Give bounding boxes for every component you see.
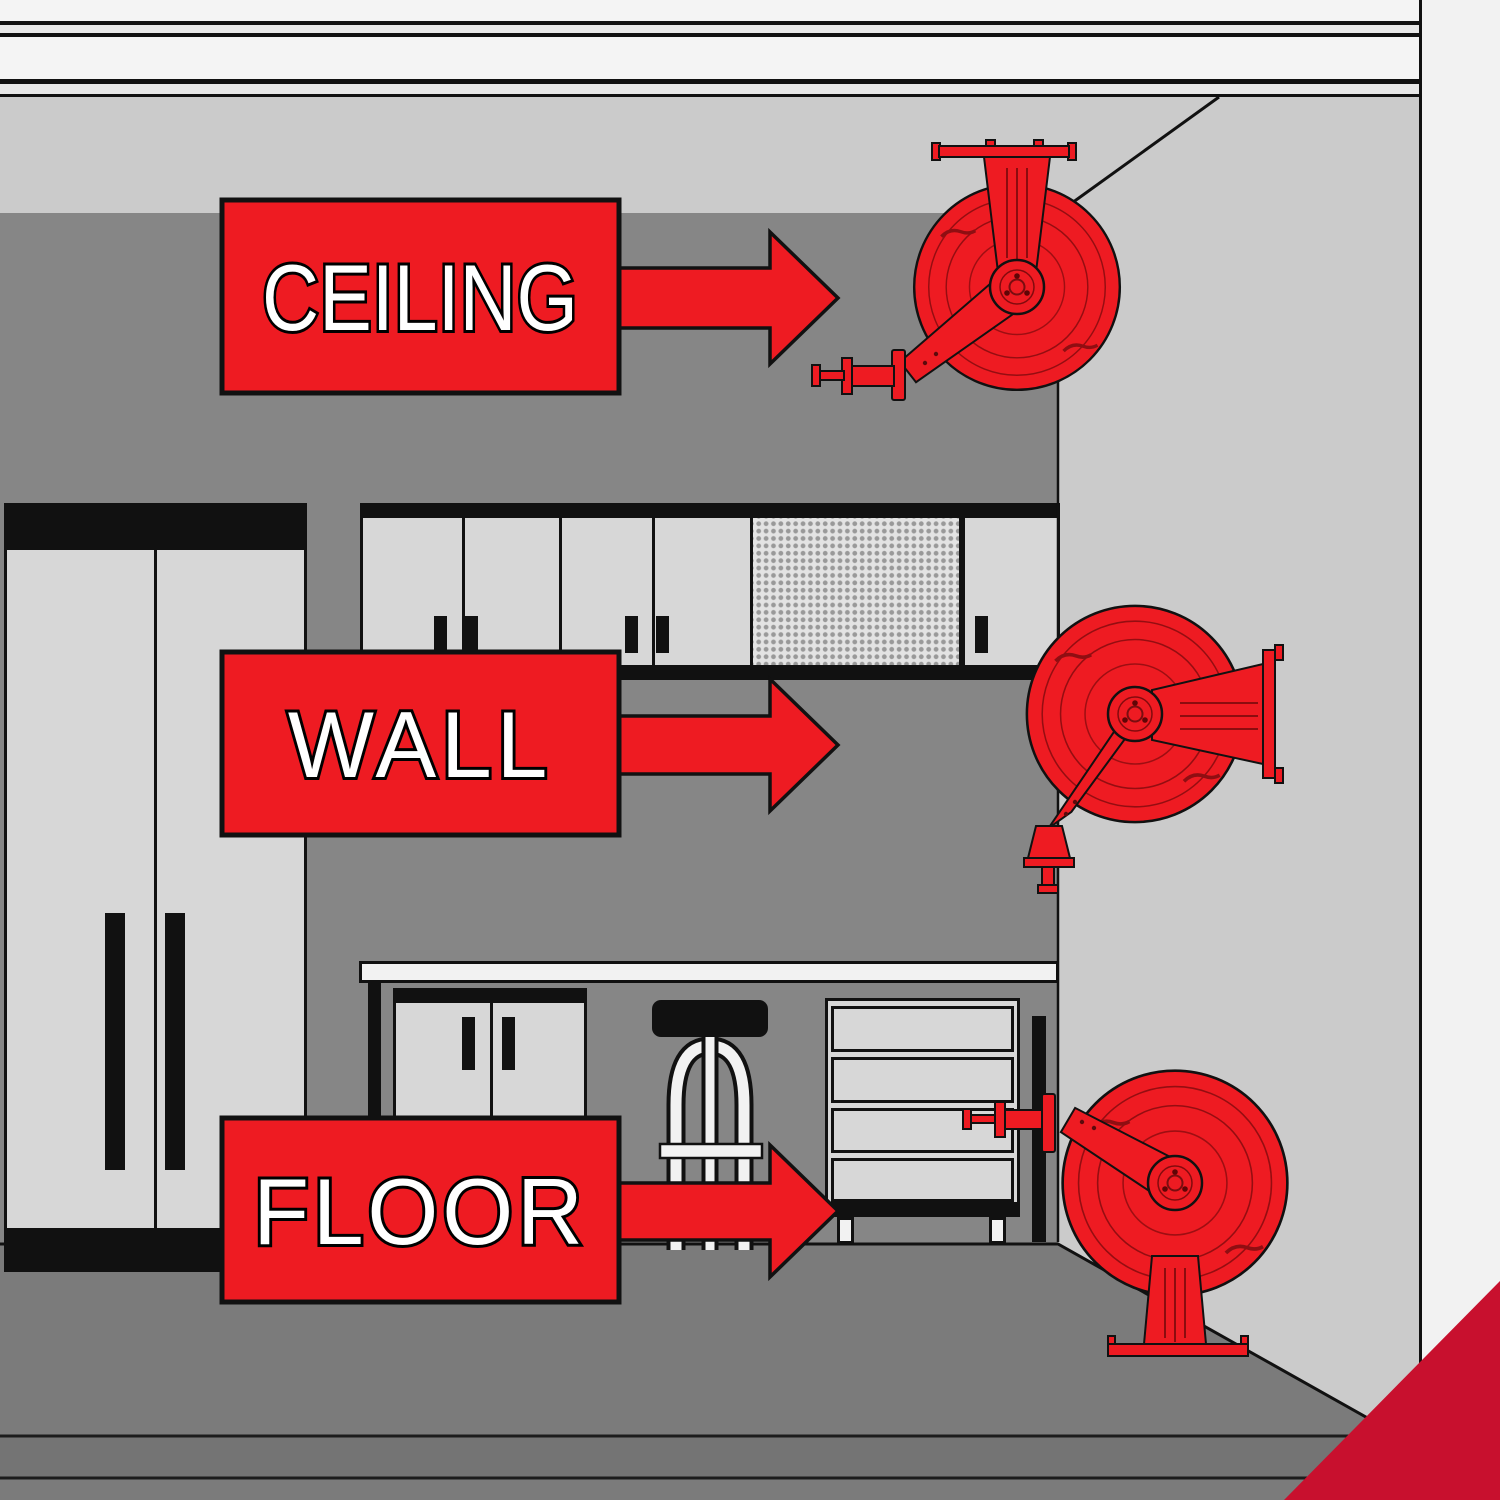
pegboard-panel [750,515,962,668]
cabinet-handle [656,616,669,653]
garage-scene: CEILING WALL FLOOR [0,0,1500,1500]
tall-cabinet-handle [105,913,125,1170]
cabinet-handle [462,1017,475,1070]
cabinet-handle [465,616,478,653]
bench-end-panel [1032,1016,1046,1242]
countertop [359,961,1059,983]
cabinet-handle [502,1017,515,1070]
stool-seat [652,1000,768,1037]
cabinet-handle [625,616,638,653]
frame-border-line [1419,0,1422,1500]
bench-cabinet [393,1000,493,1190]
cabinet-handle [975,616,988,653]
drawer [831,1057,1014,1103]
drawer-unit-leg [837,1217,854,1244]
cabinet-handle [434,616,447,653]
drawer [831,1158,1014,1202]
drawer [831,1108,1014,1153]
drawer-unit-leg [989,1217,1006,1244]
drawer [831,1006,1014,1052]
tall-cabinet-handle [165,913,185,1170]
ceiling-trim [0,0,1421,97]
